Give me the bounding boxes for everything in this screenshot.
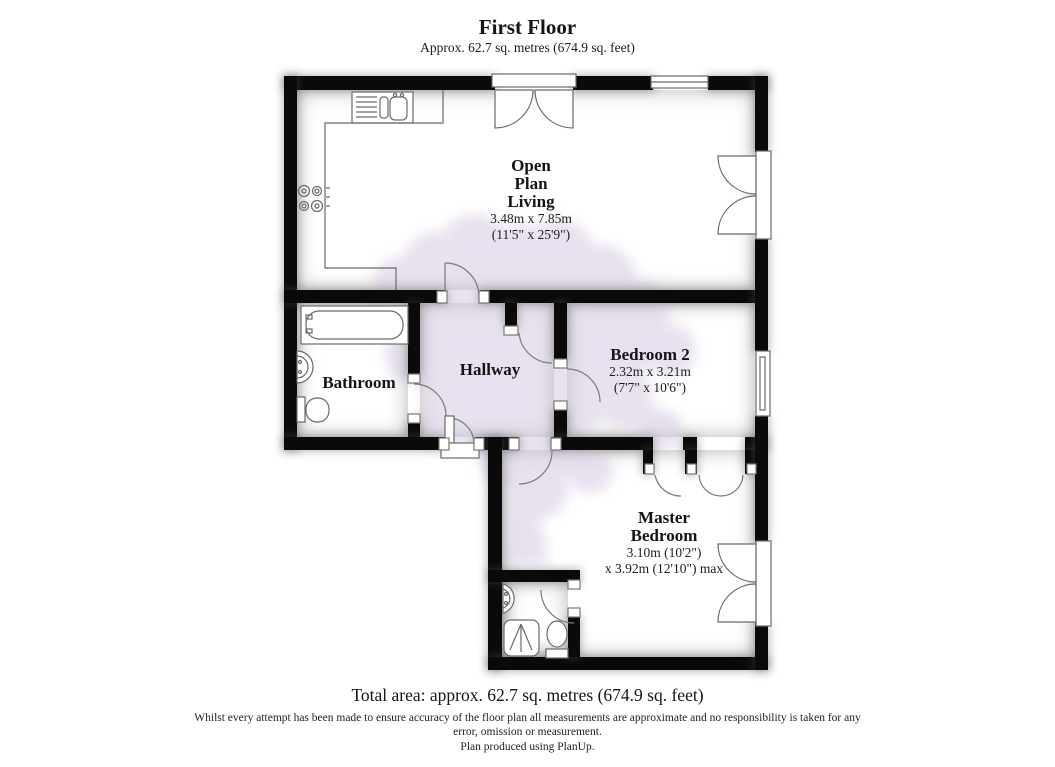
living-door-arc <box>445 263 479 297</box>
living-room-label: Open Plan Living 3.48m x 7.85m (11'5" x … <box>490 157 572 242</box>
bedroom2-dims-imperial: (7'7" x 10'6") <box>609 380 691 396</box>
total-area-text: Total area: approx. 62.7 sq. metres (674… <box>0 685 1055 706</box>
bathtub-icon <box>301 306 408 344</box>
hallway-stub-arc <box>519 333 552 363</box>
bathroom-door-arc <box>414 384 446 416</box>
bedroom2-door-arc <box>567 369 600 402</box>
wardrobe-door1-arc <box>655 475 681 496</box>
floorplan-page: First Floor Approx. 62.7 sq. metres (674… <box>0 0 1055 767</box>
bathroom-basin-icon <box>297 351 313 383</box>
credit-text: Plan produced using PlanUp. <box>0 741 1055 753</box>
master-door-arc <box>519 451 552 484</box>
hallway-name: Hallway <box>460 361 520 379</box>
shower-tray-icon <box>504 620 539 656</box>
bedroom2-label: Bedroom 2 2.32m x 3.21m (7'7" x 10'6") <box>609 346 691 395</box>
disclaimer-text: Whilst every attempt has been made to en… <box>183 711 873 739</box>
master-dims-imperial: x 3.92m (12'10") max <box>605 561 723 577</box>
master-name-1: Master <box>605 509 723 527</box>
living-dims-imperial: (11'5" x 25'9") <box>490 227 572 243</box>
master-bedroom-label: Master Bedroom 3.10m (10'2") x 3.92m (12… <box>605 509 723 576</box>
living-name-2: Plan <box>490 175 572 193</box>
bedroom2-dims-metric: 2.32m x 3.21m <box>609 364 691 380</box>
kitchen-sink-unit-icon <box>352 92 413 123</box>
living-dims-metric: 3.48m x 7.85m <box>490 211 572 227</box>
ensuite-toilet-icon <box>546 621 568 658</box>
hallway-label: Hallway <box>460 361 520 379</box>
french-doors-master-icon <box>718 541 771 626</box>
window-bedroom2-icon <box>756 351 770 416</box>
ensuite-basin-icon <box>503 584 514 613</box>
bathroom-toilet-icon <box>297 397 329 422</box>
master-dims-metric: 3.10m (10'2") <box>605 545 723 561</box>
wardrobe-door2-arc-right <box>721 475 743 496</box>
bathroom-label: Bathroom <box>322 374 395 392</box>
symbol-layer <box>0 0 1055 767</box>
living-name-1: Open <box>490 157 572 175</box>
french-doors-living-icon <box>718 151 771 239</box>
living-name-3: Living <box>490 193 572 211</box>
master-name-2: Bedroom <box>605 527 723 545</box>
french-doors-top-icon <box>492 74 576 128</box>
ensuite-door-arc <box>541 590 574 623</box>
bathroom-name: Bathroom <box>322 374 395 392</box>
window-top-icon <box>651 76 708 88</box>
wardrobe-door2-arc-left <box>699 475 721 496</box>
bedroom2-name: Bedroom 2 <box>609 346 691 364</box>
